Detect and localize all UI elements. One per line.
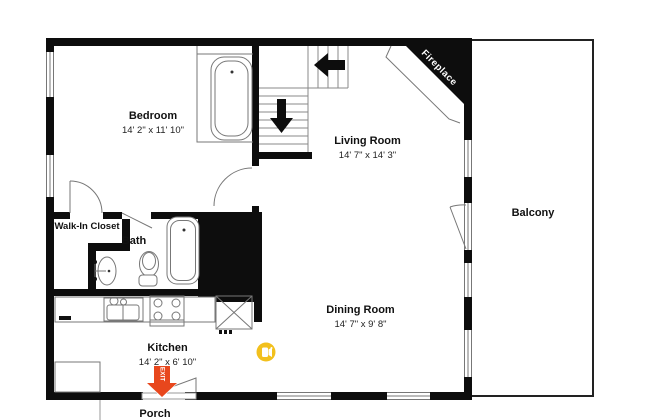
- room-label-bedroom: Bedroom 14' 2" x 11' 10": [88, 110, 218, 137]
- exit-label: EXIT: [159, 367, 166, 381]
- exit-marker: EXIT: [147, 366, 177, 397]
- room-label-living-room: Living Room 14' 7" x 14' 3": [305, 135, 430, 162]
- room-label-walk-in-closet: Walk-In Closet: [53, 221, 121, 233]
- bath-door-leaf: [122, 213, 152, 228]
- porch-name: Porch: [105, 408, 205, 420]
- kitchen-cabinet-lower: [55, 362, 100, 392]
- bedroom-door-arc: [214, 168, 252, 206]
- dining-room-dims: 14' 7" x 9' 8": [298, 320, 423, 331]
- living-room-dims: 14' 7" x 14' 3": [305, 151, 430, 162]
- bedroom-name: Bedroom: [88, 110, 218, 123]
- kitchen-counter: [55, 297, 215, 322]
- balcony-door-arc: [450, 205, 466, 207]
- living-room-name: Living Room: [305, 135, 430, 148]
- kitchen-dims: 14' 2" x 6' 10": [105, 358, 230, 369]
- video-camera-icon: [262, 348, 268, 358]
- dining-room-name: Dining Room: [298, 304, 423, 317]
- kitchen-name: Kitchen: [105, 342, 230, 355]
- toilet: [140, 252, 159, 277]
- bedroom-dims: 14' 2" x 11' 10": [88, 126, 218, 137]
- room-label-kitchen: Kitchen 14' 2" x 6' 10": [105, 342, 230, 369]
- balcony-name: Balcony: [472, 207, 594, 220]
- bath-name: Bath: [104, 235, 164, 248]
- room-label-dining-room: Dining Room 14' 7" x 9' 8": [298, 304, 423, 331]
- floor-plan: EXIT Bedroom 14' 2" x 11' 10" Living Roo…: [0, 0, 650, 420]
- stair-arrow-left-icon: [314, 53, 345, 77]
- room-label-porch: Porch: [105, 408, 205, 420]
- room-label-balcony: Balcony: [472, 207, 594, 220]
- bathtub: [167, 217, 199, 284]
- room-label-bath: Bath: [104, 235, 164, 248]
- closet-door-arc: [70, 181, 102, 213]
- camera-marker[interactable]: [257, 343, 276, 362]
- walk-in-closet-name: Walk-In Closet: [53, 221, 121, 233]
- balcony-door-leaf: [450, 207, 466, 249]
